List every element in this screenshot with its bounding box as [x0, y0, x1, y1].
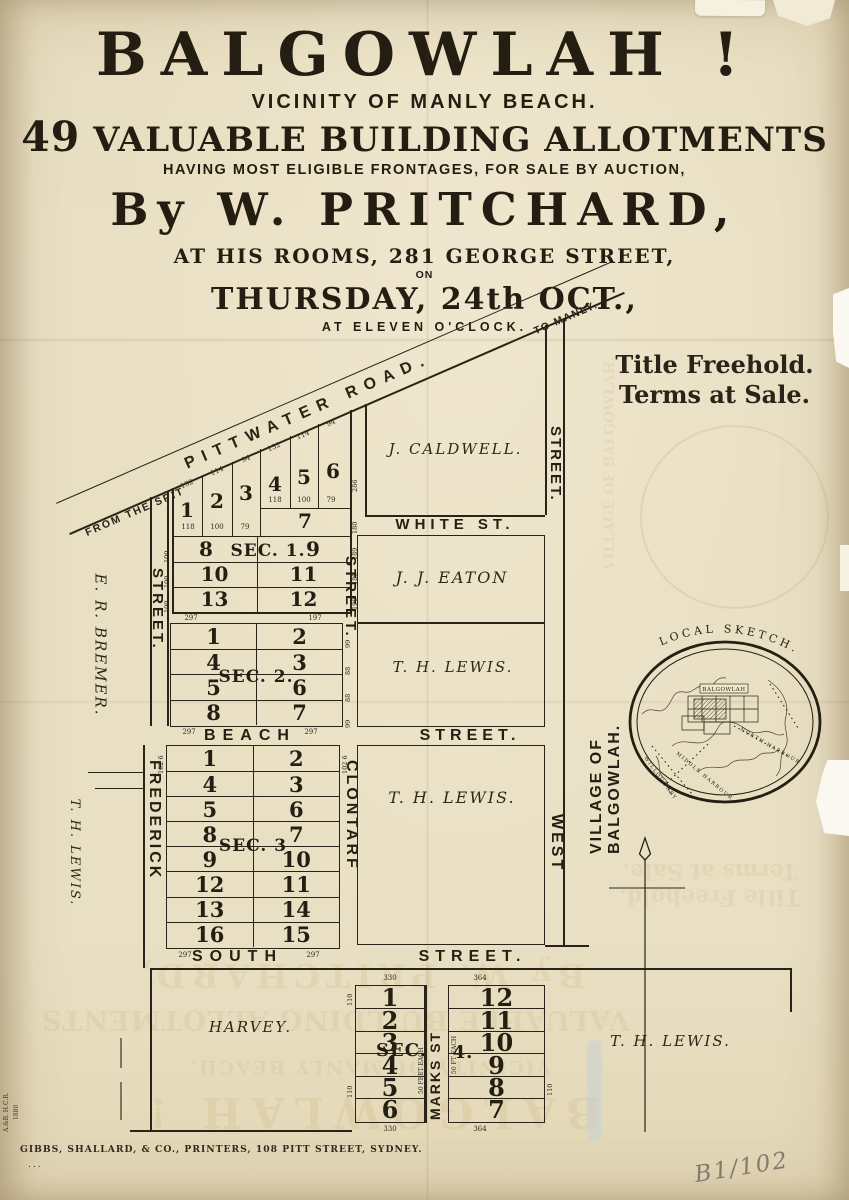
lot-size-note: 50 FEET EACH: [418, 1022, 425, 1094]
street-label-beach-street: STREET.: [385, 727, 555, 744]
allotments-line: 49 VALUABLE BUILDING ALLOTMENTS: [0, 113, 849, 161]
lot-cell: 7: [257, 701, 342, 725]
lot-number: 12: [195, 872, 224, 897]
lot-row: 1 2: [171, 624, 342, 649]
bleed-through-text: VALUABLE BUILDING ALLOTMENTS: [70, 1004, 630, 1035]
lot-cell: 14: [254, 898, 340, 922]
lot-number: 13: [195, 897, 224, 922]
side-measure: 110: [347, 1080, 354, 1098]
side-measure: 110: [347, 988, 354, 1006]
lot-cell: 15: [254, 923, 340, 947]
lewis-block-south: [357, 745, 545, 945]
street-label-vertical: STREET.: [149, 568, 166, 651]
lot-row: 12 11: [167, 871, 339, 896]
frontage-measure: 364: [450, 974, 510, 982]
lot-number: 1: [175, 500, 199, 521]
lot-cell: 5: [167, 797, 254, 821]
frontage-measure: 330: [360, 974, 420, 982]
lot-cell: 8: [171, 701, 257, 725]
lot-number: 7: [488, 1095, 505, 1123]
street-line: [545, 945, 589, 947]
lot-cell: 2: [257, 624, 342, 649]
lot-cell: 16: [167, 923, 254, 947]
depth-measure: 297: [176, 614, 206, 622]
lot-row: 13 14: [167, 897, 339, 922]
section-2-label: SEC. 2.: [200, 667, 312, 687]
lot-number: 6: [382, 1095, 399, 1123]
lot-number: 4: [202, 772, 217, 797]
street-line: [167, 492, 169, 726]
lot-cell: 3: [254, 772, 340, 796]
street-label-west-north: STREET.: [547, 426, 564, 502]
lot-number: 9: [288, 539, 338, 560]
sketch-town-label: BALGOWLAH: [702, 687, 745, 693]
margin-dash: [120, 1038, 122, 1068]
owner-label-harvey: HARVEY.: [178, 1018, 323, 1036]
side-measure: 110: [547, 1078, 554, 1096]
frontage-measure: 100: [204, 523, 230, 531]
allotments-count: 49: [21, 113, 80, 161]
lot-number: 1: [206, 624, 221, 649]
printer-imprint: GIBBS, SHALLARD, & CO., PRINTERS, 108 PI…: [20, 1144, 580, 1155]
lot-number: 16: [195, 922, 224, 947]
boundary-line: [130, 1130, 352, 1132]
lot-row: 6: [356, 1098, 424, 1120]
lot-cell: 2: [254, 746, 340, 771]
street-label-clontarf: CLONTARF: [342, 760, 360, 871]
allotments-text: VALUABLE BUILDING ALLOTMENTS: [93, 120, 828, 160]
north-arrow: [600, 836, 720, 1136]
block-boundary-line: [365, 404, 367, 515]
auction-date: THURSDAY, 24th OCT.,: [0, 282, 849, 317]
lot-cell: 1: [171, 624, 257, 649]
frontage-measure: 79: [318, 496, 344, 504]
lot-number: 14: [282, 897, 311, 922]
lot-row: 16 15: [167, 922, 339, 947]
frontage-measure: 79: [232, 523, 258, 531]
frontage-measure: 100: [291, 496, 317, 504]
street-label-west: WEST: [547, 814, 565, 872]
north-arrow-head: [640, 838, 651, 860]
lot-number: 13: [172, 589, 257, 610]
bleed-through-circle: [640, 425, 829, 609]
depth-measure: 330: [360, 1125, 420, 1133]
side-measure: 286: [352, 470, 359, 492]
lot-cell: 11: [254, 872, 340, 896]
boundary-tick: [95, 788, 143, 789]
margin-dash: [120, 1082, 122, 1120]
sketch-coastline: [642, 678, 787, 794]
owner-label-lewis: T. H. LEWIS.: [378, 658, 528, 676]
paper-tear: [840, 545, 849, 591]
frontages-line: HAVING MOST ELIGIBLE FRONTAGES, FOR SALE…: [0, 162, 849, 178]
depth-measure: 364: [450, 1125, 510, 1133]
frontage-measure: 118: [175, 523, 201, 531]
lot-number: 4: [263, 474, 287, 495]
lot-number: 7: [260, 511, 350, 532]
auction-time: AT ELEVEN O'CLOCK.: [0, 320, 849, 334]
owner-label-bremer: E. R. BREMER.: [92, 573, 110, 718]
terms-block: Title Freehold. Terms at Sale.: [612, 350, 817, 410]
margin-annotation-year: 1880: [13, 1060, 20, 1120]
lot-number: 7: [292, 700, 307, 725]
terms-line-1: Title Freehold.: [612, 350, 817, 380]
lot-number: 2: [292, 624, 307, 649]
lot-size-note: 50 FT EACH: [451, 1016, 458, 1074]
street-label-marks: MARKS ST: [427, 1006, 443, 1120]
lot-number: 2: [205, 491, 229, 512]
catalog-mark-handwritten: B1/102: [693, 1142, 825, 1188]
lot-row: 1 2: [167, 746, 339, 771]
lot-cell: 13: [167, 898, 254, 922]
auction-poster: By W. PRITCHARD, VALUABLE BUILDING ALLOT…: [0, 0, 849, 1200]
lot-cell: 12: [167, 872, 254, 896]
lot-number: 1: [202, 746, 217, 771]
lot-number: 10: [172, 564, 257, 585]
boundary-stub: [790, 968, 792, 1012]
lot-number: 11: [282, 872, 311, 897]
lot-number: 2: [289, 746, 304, 771]
lot-number: 15: [282, 922, 311, 947]
margin-annotation: A.&B. H.C.R.: [3, 1052, 10, 1132]
lot-number: 5: [202, 797, 217, 822]
side-measure: 99: [345, 708, 352, 728]
section-3-label: SEC. 3: [194, 836, 312, 856]
lot-row: 8 7: [171, 700, 342, 725]
lot-cell: 4: [167, 772, 254, 796]
boundary-tick: [88, 772, 143, 773]
street-line: [150, 968, 152, 1131]
depth-measure: 197: [300, 614, 330, 622]
owner-label-lewis: T. H. LEWIS.: [372, 788, 532, 807]
owner-label-caldwell: J. CALDWELL.: [378, 440, 533, 458]
street-label-frederick: FREDERICK: [145, 760, 163, 880]
lot-number: 8: [206, 700, 221, 725]
auctioneer-line: By W. PRITCHARD,: [0, 183, 849, 236]
poster-subtitle: VICINITY OF MANLY BEACH.: [0, 91, 849, 114]
lot-number: 6: [289, 797, 304, 822]
rooms-line: AT HIS ROOMS, 281 GEORGE STREET,: [0, 244, 849, 268]
owner-label-lewis-west: T. H. LEWIS.: [67, 790, 82, 915]
section-4-label-a: SEC.: [376, 1040, 422, 1061]
sketch-label-willoughby: WILLOUGHBY: [642, 756, 678, 802]
lot-cell: 1: [167, 746, 254, 771]
lot-row: 5 6: [167, 796, 339, 821]
street-label-white: WHITE ST.: [365, 516, 545, 534]
side-measure: 180: [352, 514, 359, 534]
printer-ornament: ...: [28, 1160, 43, 1170]
lot-row: 4 3: [167, 771, 339, 796]
street-label-south-street: STREET.: [385, 948, 560, 966]
street-label-beach: BEACH: [175, 727, 325, 744]
frontage-measure: 118: [262, 496, 288, 504]
lot-number: 11: [257, 564, 350, 585]
terms-line-2: Terms at Sale.: [612, 380, 817, 410]
lot-number: 3: [234, 483, 258, 504]
street-label-south: SOUTH: [165, 948, 310, 966]
paper-tear: [695, 0, 765, 16]
lot-number: 6: [320, 461, 346, 482]
street-label-clontarf-north: STREET.: [342, 556, 359, 639]
bleed-through-text: VILLAGE OF BALGOWLAH.: [602, 420, 618, 570]
on-word: ON: [0, 269, 849, 281]
lot-row: 7: [449, 1098, 544, 1120]
lot-number: 12: [257, 589, 350, 610]
lot-number: 3: [289, 772, 304, 797]
owner-label-eaton: J. J. EATON: [372, 568, 532, 587]
local-sketch: LOCAL SKETCH. BALGOWLAH: [612, 596, 838, 816]
poster-title: BALGOWLAH !: [0, 20, 849, 90]
side-measure: 88: [345, 682, 352, 702]
lot-number: 5: [292, 467, 316, 488]
lot-cell: 6: [254, 797, 340, 821]
side-measure: 88: [345, 655, 352, 675]
